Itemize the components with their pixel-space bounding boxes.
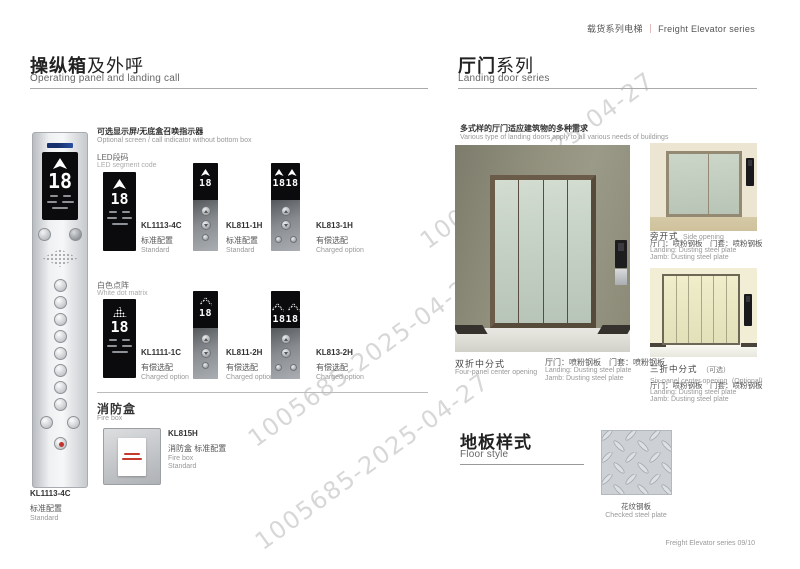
catalog-page: 1005685-2025-04-27 1005685-2025-04-27 10… xyxy=(0,0,800,569)
door-open-button xyxy=(38,228,51,241)
up-arrow-icon xyxy=(201,169,210,176)
floor-number: 1818 xyxy=(272,179,298,189)
group-name-en: White dot matrix xyxy=(97,290,148,297)
door-spec-en: Jamb: Dusting steel plate xyxy=(545,375,624,382)
hall-display: 18 xyxy=(193,291,218,328)
checkered-plate-svg xyxy=(601,430,672,495)
key-switch xyxy=(290,236,297,243)
up-arrow-icon xyxy=(288,303,300,312)
floor-button xyxy=(54,364,67,377)
down-call-button xyxy=(281,348,291,358)
header-series-zh: 载货系列电梯 xyxy=(587,24,643,34)
checkered-plate-image xyxy=(601,430,672,500)
plate-caption: 花纹钢板 Checked steel plate xyxy=(581,501,691,519)
product-label: KL1113-4C 标准配置 Standard xyxy=(30,489,120,522)
door-spec-en: Landing: Dusting steel plate xyxy=(650,389,736,396)
firebox-image xyxy=(103,428,161,485)
page-footer: Freight Elevator series 09/10 xyxy=(666,540,756,547)
door-photo-six-panel xyxy=(650,268,757,357)
indicator-panel-image: 18 xyxy=(103,299,136,378)
floor-number: 1818 xyxy=(272,315,298,325)
divider xyxy=(458,88,757,89)
door-close-button xyxy=(69,228,82,241)
hall-display: 1818 xyxy=(271,163,300,200)
door-opening xyxy=(662,274,740,345)
up-arrow-icon xyxy=(53,158,67,169)
baseboard xyxy=(741,343,757,347)
firebox-label-card xyxy=(118,438,146,476)
baseboard xyxy=(455,325,488,334)
cop-display-screen: 18 xyxy=(42,152,78,220)
floor-button-column xyxy=(33,279,87,411)
door-open-button xyxy=(40,416,53,429)
up-arrow-icon xyxy=(288,169,297,176)
hall-panel-image: 18 xyxy=(193,163,218,251)
down-call-button xyxy=(201,220,211,230)
product-label: KL815H 消防盒 标准配置 Fire box Standard xyxy=(168,429,258,470)
floor-button xyxy=(54,347,67,360)
hall-indicator xyxy=(744,294,752,326)
hall-panel-image: 18 xyxy=(193,291,218,379)
floor-button xyxy=(54,313,67,326)
hall-button-plate xyxy=(615,269,627,285)
floor-button xyxy=(54,330,67,343)
watermark: 1005685-2025-04-27 xyxy=(250,367,495,555)
floor-button xyxy=(54,381,67,394)
door-section-subtitle: Landing door series xyxy=(458,73,550,84)
cop-panel-image: 18 xyxy=(32,132,88,488)
product-label: KL813-2H 有偿选配 Charged option xyxy=(316,348,406,381)
panel-section-subtitle: Operating panel and landing call xyxy=(30,73,180,84)
indicator-panel-image: 18 xyxy=(103,172,136,251)
door-intro-zh: 多式样的厅门适应建筑物的多种需求 xyxy=(460,123,588,134)
door-close-button xyxy=(67,416,80,429)
optional-header-zh: 可选显示屏/无底盒召唤指示器 xyxy=(97,126,203,137)
up-arrow-icon xyxy=(113,179,126,189)
up-call-button xyxy=(201,334,211,344)
hall-indicator xyxy=(746,158,754,186)
key-switch xyxy=(202,234,209,241)
up-call-button xyxy=(281,206,291,216)
hall-panel-image: 1818 xyxy=(271,163,300,251)
brand-logo xyxy=(47,143,73,148)
door-spec-en: Jamb: Dusting steel plate xyxy=(650,396,729,403)
up-arrow-icon xyxy=(200,297,212,306)
door-intro-en: Various type of landing doors apply to a… xyxy=(460,134,668,141)
floor-button xyxy=(54,398,67,411)
door-name-en: Four-panel center opening xyxy=(455,369,537,376)
up-arrow-icon xyxy=(272,303,284,312)
key-switch xyxy=(275,364,282,371)
floor-section-subtitle: Floor style xyxy=(460,449,508,460)
divider xyxy=(460,464,584,465)
header-separator: ｜ xyxy=(646,24,655,34)
down-call-button xyxy=(201,348,211,358)
speaker-grille xyxy=(42,249,78,267)
plate-caption-en: Checked steel plate xyxy=(581,512,691,519)
up-arrow-icon xyxy=(113,306,127,317)
group-name-en: LED segment code xyxy=(97,162,157,169)
floor-button xyxy=(54,296,67,309)
door-opening xyxy=(666,151,742,217)
floor-number: 18 xyxy=(110,192,128,207)
door-spec-en: Landing: Dusting steel plate xyxy=(545,367,631,374)
key-switch xyxy=(275,236,282,243)
floor-number: 18 xyxy=(110,320,128,335)
key-switch xyxy=(202,362,209,369)
hall-display: 1818 xyxy=(271,291,300,328)
plate-caption-zh: 花纹钢板 xyxy=(581,501,691,512)
page-header: 载货系列电梯｜Freight Elevator series xyxy=(587,22,755,35)
up-arrow-icon xyxy=(275,169,284,176)
down-call-button xyxy=(281,220,291,230)
floor-button xyxy=(54,279,67,292)
floor-number: 18 xyxy=(48,171,72,191)
door-photo-side-opening xyxy=(650,143,757,231)
door-photo-four-panel xyxy=(455,145,630,352)
door-opening xyxy=(490,175,596,328)
floor-number: 18 xyxy=(199,309,212,319)
door-spec-en: Landing: Dusting steel plate xyxy=(650,247,736,254)
hall-panel-image: 1818 xyxy=(271,291,300,379)
door-spec-en: Jamb: Dusting steel plate xyxy=(650,254,729,261)
baseboard xyxy=(597,325,630,334)
key-switch xyxy=(290,364,297,371)
hall-indicator xyxy=(615,240,627,268)
firebox-title-en: Fire box xyxy=(97,415,122,422)
product-label: KL813-1H 有偿选配 Charged option xyxy=(316,221,406,254)
divider xyxy=(30,88,428,89)
up-call-button xyxy=(281,334,291,344)
hall-display: 18 xyxy=(193,163,218,200)
alarm-button xyxy=(54,437,67,450)
optional-header-en: Optional screen / call indicator without… xyxy=(97,137,251,144)
divider xyxy=(97,392,428,393)
up-call-button xyxy=(201,206,211,216)
header-series-en: Freight Elevator series xyxy=(658,24,755,34)
floor-number: 18 xyxy=(199,179,212,189)
